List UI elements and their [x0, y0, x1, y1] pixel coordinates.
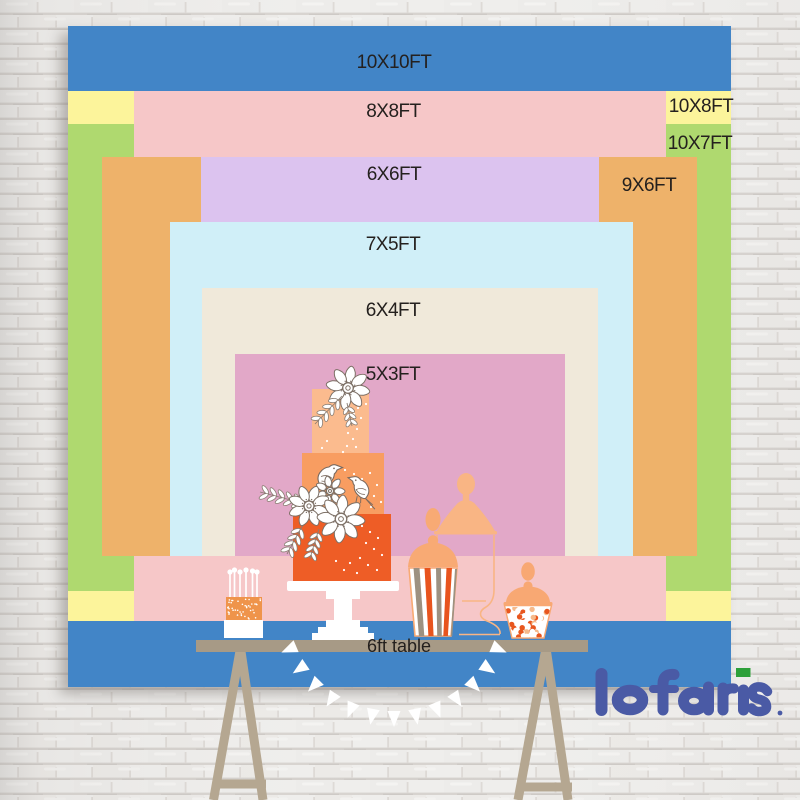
svg-text:6ft table: 6ft table — [367, 636, 431, 656]
